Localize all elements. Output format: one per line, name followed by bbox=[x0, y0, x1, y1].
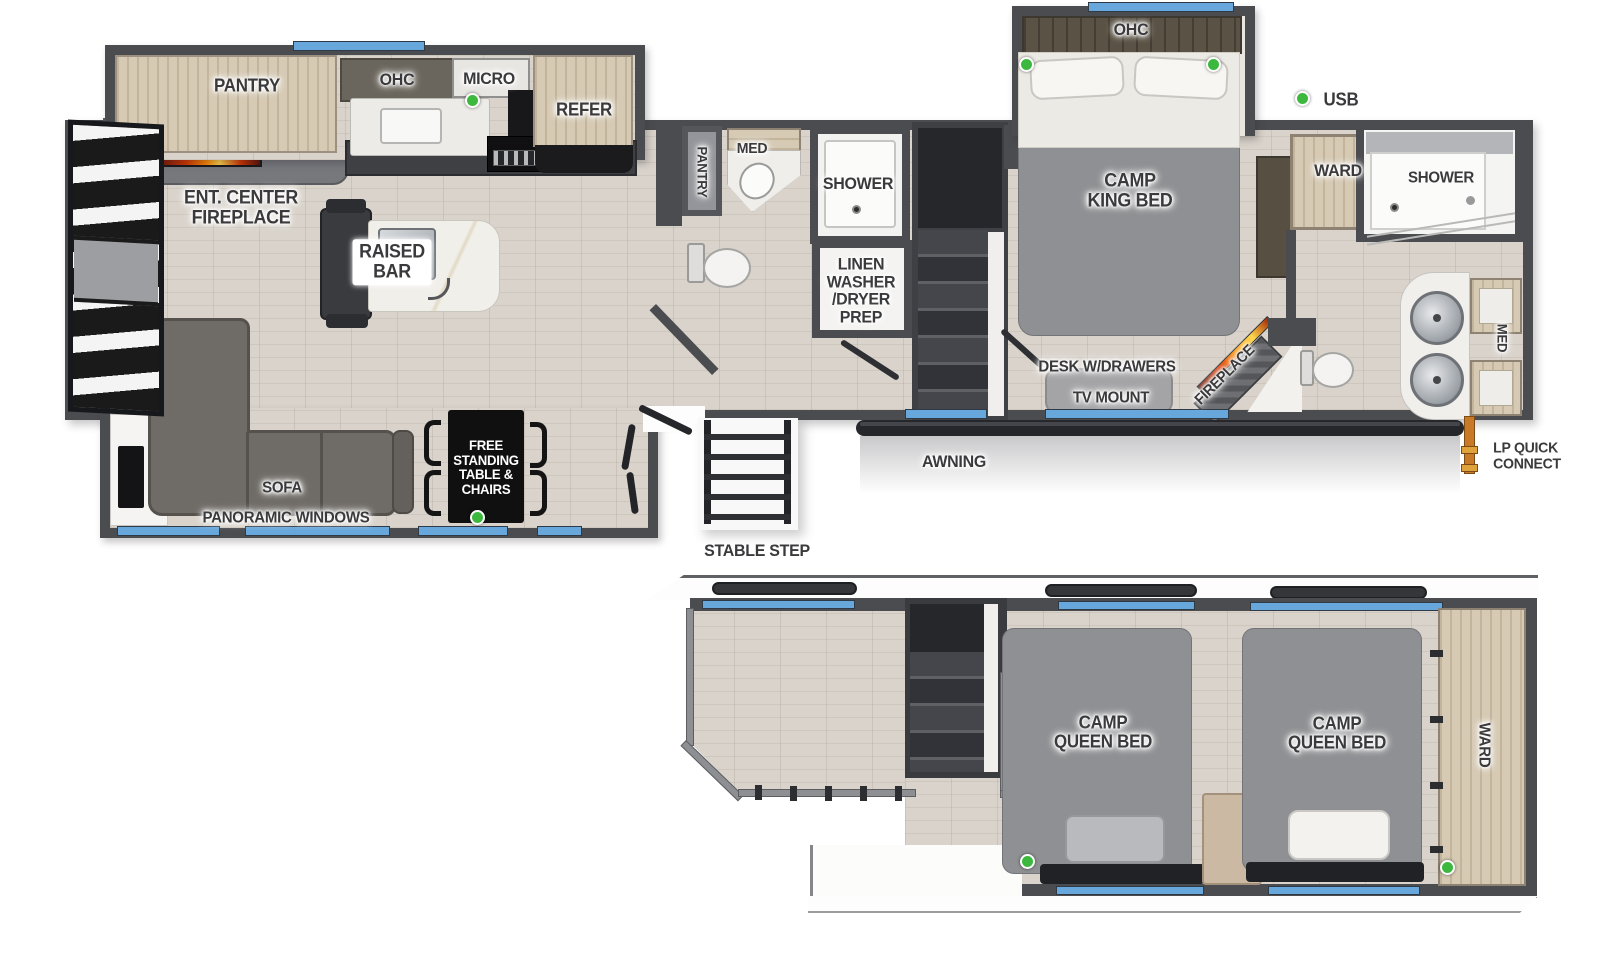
queen-bed-1-mat bbox=[1040, 864, 1205, 884]
label-sofa: SOFA bbox=[262, 481, 302, 498]
queen-bed-1-pillow bbox=[1065, 815, 1165, 863]
loft-stairs-landing bbox=[910, 604, 984, 652]
dinette-chair-left-2 bbox=[424, 470, 441, 516]
desk-wall-window bbox=[1045, 409, 1229, 419]
loft-top-window-1 bbox=[702, 600, 855, 609]
railing-post-1 bbox=[755, 785, 762, 800]
label-tv-mount: TV MOUNT bbox=[1073, 391, 1149, 408]
rear-sink-1-drain bbox=[1433, 314, 1441, 322]
dinette-chair-left-1 bbox=[424, 420, 441, 466]
label-pantry-bath: PANTRY bbox=[695, 147, 710, 198]
living-window-4 bbox=[537, 526, 582, 536]
sofa-seam bbox=[320, 432, 323, 514]
loft-roof-band-bottom bbox=[808, 896, 1538, 913]
lp-connector-ring-2 bbox=[1461, 464, 1478, 472]
usb-dot-king-left bbox=[1019, 57, 1034, 72]
queen-bed-2-mat bbox=[1246, 862, 1424, 882]
label-ward-bedroom: WARD bbox=[1314, 162, 1362, 180]
label-lp-quick-connect: LP QUICK CONNECT bbox=[1493, 440, 1561, 471]
rear-window-blinds-mid bbox=[74, 236, 158, 306]
label-shower-rear: SHOWER bbox=[1408, 171, 1474, 188]
loft-top-window-2 bbox=[1058, 601, 1195, 610]
living-window-3 bbox=[418, 526, 508, 536]
stable-step-rung-5 bbox=[704, 514, 791, 520]
loft-stairs-steps bbox=[910, 652, 984, 772]
railing-post-3 bbox=[825, 786, 832, 801]
mid-shower-drain bbox=[852, 205, 861, 214]
label-usb-legend: USB bbox=[1324, 91, 1359, 110]
hall-window bbox=[905, 409, 987, 419]
rear-med-cabinet-bottom-drawer bbox=[1479, 370, 1513, 406]
stable-step-rung-1 bbox=[704, 434, 791, 440]
loft-stairs-stringer bbox=[984, 604, 998, 772]
rear-med-cabinet-top-drawer bbox=[1479, 288, 1513, 324]
dinette-chair-right-1 bbox=[530, 422, 547, 468]
usb-dot-king-right bbox=[1206, 57, 1221, 72]
main-stairs-stringer bbox=[988, 232, 1004, 416]
loft-skylight-2 bbox=[1045, 584, 1197, 597]
lp-connector-ring-1 bbox=[1461, 446, 1478, 454]
king-pillow-left bbox=[1029, 56, 1125, 101]
label-camp-king-bed: CAMP KING BED bbox=[1087, 171, 1172, 211]
label-stable-step: STABLE STEP bbox=[704, 542, 810, 560]
wardrobe-shelf-tick-1 bbox=[1430, 650, 1443, 657]
label-panoramic-windows: PANORAMIC WINDOWS bbox=[202, 511, 369, 528]
king-slide-window bbox=[1088, 2, 1234, 12]
stable-step-rung-4 bbox=[704, 494, 791, 500]
wardrobe-shelf-tick-3 bbox=[1430, 782, 1443, 789]
label-shower-mid: SHOWER bbox=[823, 175, 893, 193]
wardrobe-shelf-tick-4 bbox=[1430, 846, 1443, 853]
usb-dot-micro bbox=[465, 93, 480, 108]
rear-shower-head bbox=[1466, 196, 1475, 205]
loft-lower-floor bbox=[810, 845, 1022, 899]
label-pantry-kitchen: PANTRY bbox=[214, 77, 280, 96]
loft-bottom-window-1 bbox=[1056, 886, 1204, 895]
label-med-rear: MED bbox=[1495, 324, 1510, 352]
loft-bottom-window-2 bbox=[1268, 886, 1420, 895]
rear-shower-glass-top bbox=[1366, 132, 1513, 154]
queen-bed-2-pillow bbox=[1288, 810, 1390, 860]
loft-skylight-1 bbox=[712, 582, 857, 595]
usb-dot-loft-1 bbox=[1020, 854, 1035, 869]
refer-counter bbox=[535, 145, 633, 173]
floorplan-canvas: PANTRY OHC MICRO REFER ENT. CENTER FIREP… bbox=[0, 0, 1600, 961]
label-camp-queen-bed-2: CAMP QUEEN BED bbox=[1288, 714, 1386, 751]
usb-dot-dinette bbox=[470, 510, 485, 525]
label-camp-queen-bed-1: CAMP QUEEN BED bbox=[1054, 713, 1152, 750]
label-raised-bar: RAISED BAR bbox=[353, 239, 432, 285]
stable-step-rung-3 bbox=[704, 474, 791, 480]
living-window-1 bbox=[117, 526, 220, 536]
label-ohc-kitchen: OHC bbox=[380, 71, 415, 89]
rear-shower-pan bbox=[1370, 152, 1486, 230]
railing-post-4 bbox=[860, 786, 867, 801]
awning-bar-highlight bbox=[860, 422, 1460, 426]
main-stairs-landing bbox=[918, 128, 1002, 228]
living-window-2 bbox=[245, 526, 390, 536]
loft-top-window-3 bbox=[1250, 602, 1443, 611]
sofa-armrest bbox=[392, 430, 414, 514]
label-micro: MICRO bbox=[463, 70, 515, 88]
loft-floor-landing bbox=[688, 610, 905, 796]
stable-step-rung-2 bbox=[704, 454, 791, 460]
label-ent-center-fireplace: ENT. CENTER FIREPLACE bbox=[184, 188, 298, 228]
bar-stool-bottom bbox=[326, 314, 368, 328]
rear-shower-drain bbox=[1390, 203, 1399, 212]
loft-railing-vertical bbox=[686, 608, 694, 746]
bedroom-bath-wall bbox=[1286, 230, 1296, 326]
railing-post-2 bbox=[790, 786, 797, 801]
bar-stool-top bbox=[326, 199, 366, 213]
label-desk: DESK W/DRAWERS bbox=[1038, 360, 1175, 377]
usb-dot-loft-2 bbox=[1440, 860, 1455, 875]
main-stairs-steps bbox=[918, 230, 988, 416]
living-slide-tv bbox=[118, 446, 144, 508]
bath-left-wall bbox=[656, 122, 682, 226]
label-ward-loft: WARD bbox=[1475, 723, 1492, 768]
rear-toilet-bowl bbox=[1312, 352, 1354, 388]
label-linen: LINEN WASHER /DRYER PREP bbox=[827, 256, 895, 327]
label-med-bath: MED bbox=[737, 141, 767, 157]
label-ohc-king: OHC bbox=[1114, 21, 1149, 39]
railing-post-5 bbox=[895, 786, 902, 801]
label-awning: AWNING bbox=[922, 453, 986, 471]
kitchen-sink bbox=[380, 108, 442, 144]
kitchen-slide-window bbox=[293, 41, 425, 51]
rear-sink-2-drain bbox=[1433, 376, 1441, 384]
label-free-standing-table: FREE STANDING TABLE & CHAIRS bbox=[453, 438, 518, 496]
dinette-chair-right-2 bbox=[530, 470, 547, 516]
label-refer: REFER bbox=[556, 101, 612, 120]
toilet-bowl bbox=[703, 248, 751, 288]
usb-legend-dot bbox=[1295, 91, 1310, 106]
wardrobe-shelf-tick-2 bbox=[1430, 716, 1443, 723]
toilet-tank bbox=[687, 243, 705, 283]
